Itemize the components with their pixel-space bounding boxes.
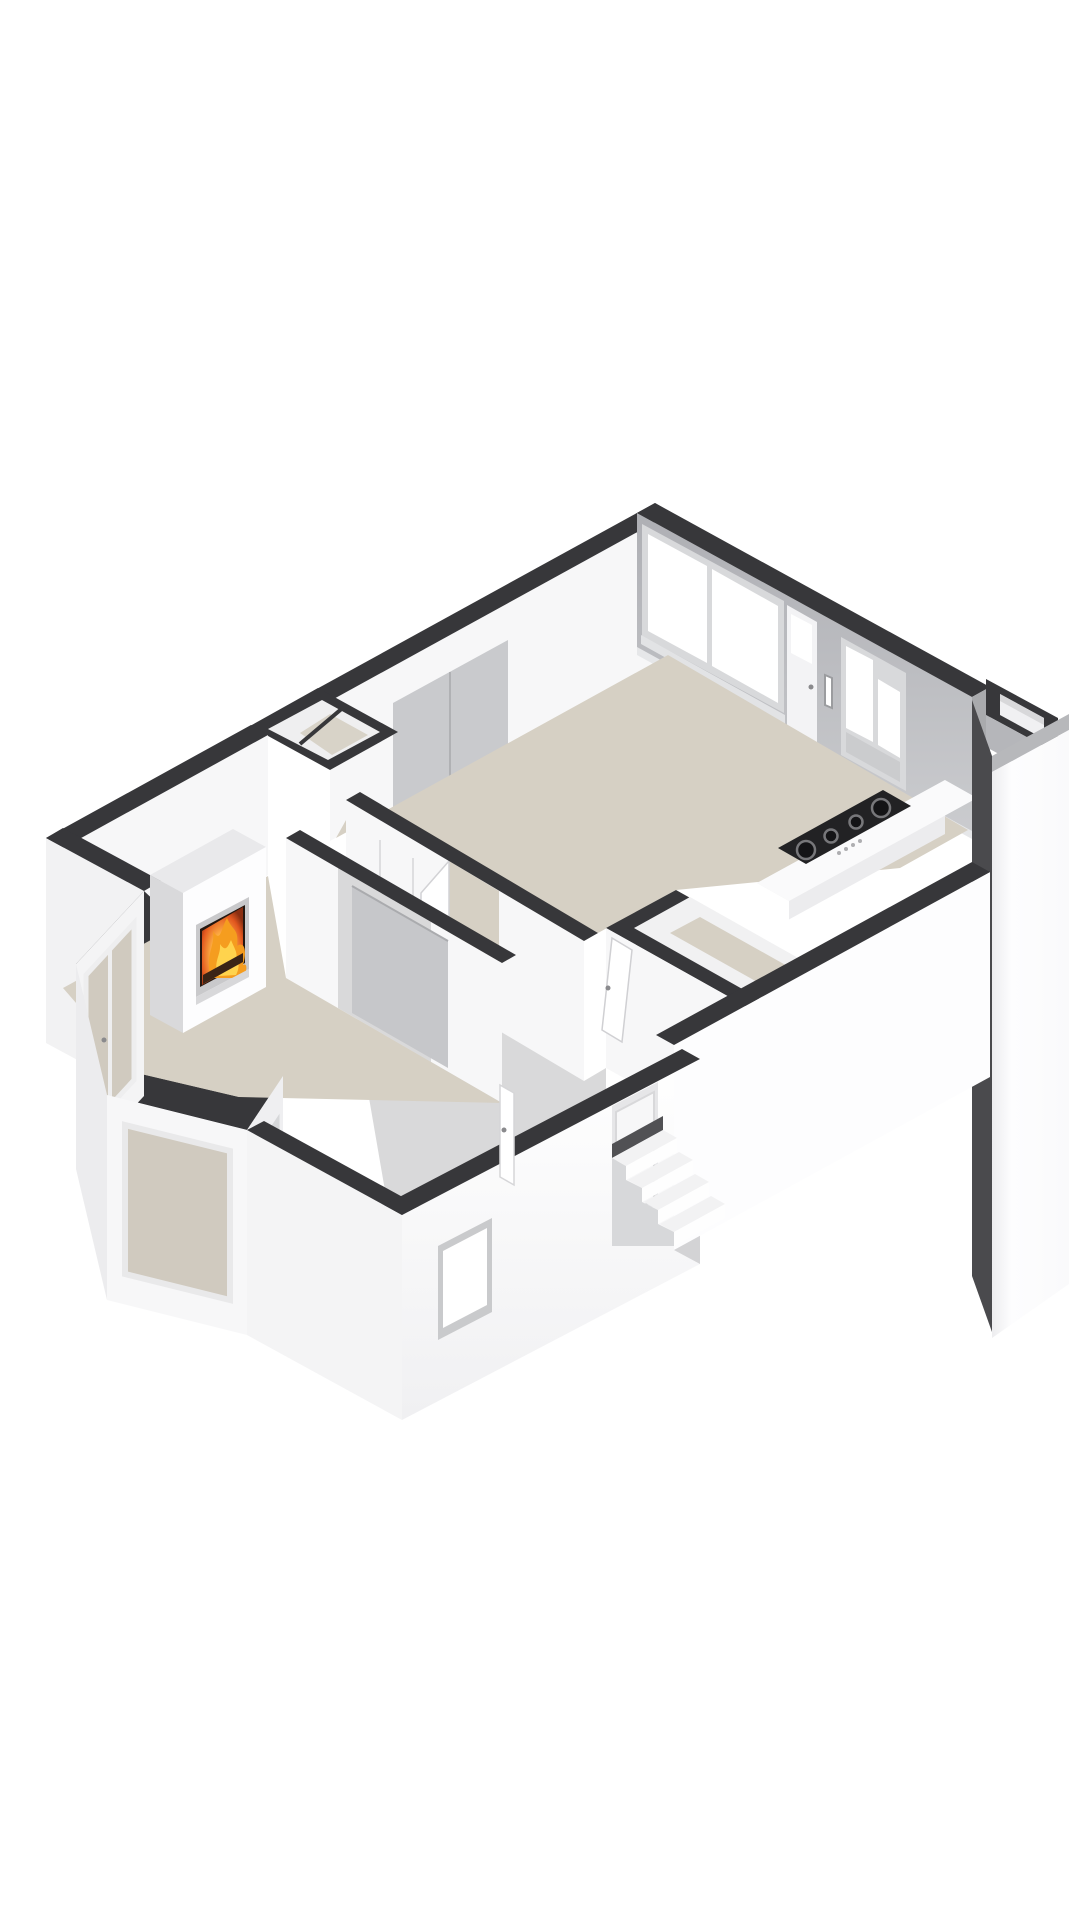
bay-front-window-glass bbox=[125, 1125, 230, 1300]
annex-white-face bbox=[992, 730, 1069, 1338]
floorplan-page bbox=[0, 0, 1080, 1920]
hall-door-leaf bbox=[500, 1085, 514, 1185]
door-handle bbox=[809, 685, 814, 690]
hall-end-door bbox=[500, 1085, 514, 1185]
double-window-pane-left bbox=[846, 646, 873, 742]
french-door-handle bbox=[102, 1038, 107, 1043]
fireplace-side-face bbox=[150, 875, 183, 1033]
letterbox-slot bbox=[825, 675, 832, 708]
double-window-pane-right bbox=[878, 679, 900, 758]
bathroom-door-handle bbox=[606, 986, 611, 991]
entry-sw-face bbox=[247, 1130, 402, 1420]
floorplan-3d-render bbox=[0, 0, 1080, 1920]
hall-door-handle bbox=[502, 1128, 507, 1133]
